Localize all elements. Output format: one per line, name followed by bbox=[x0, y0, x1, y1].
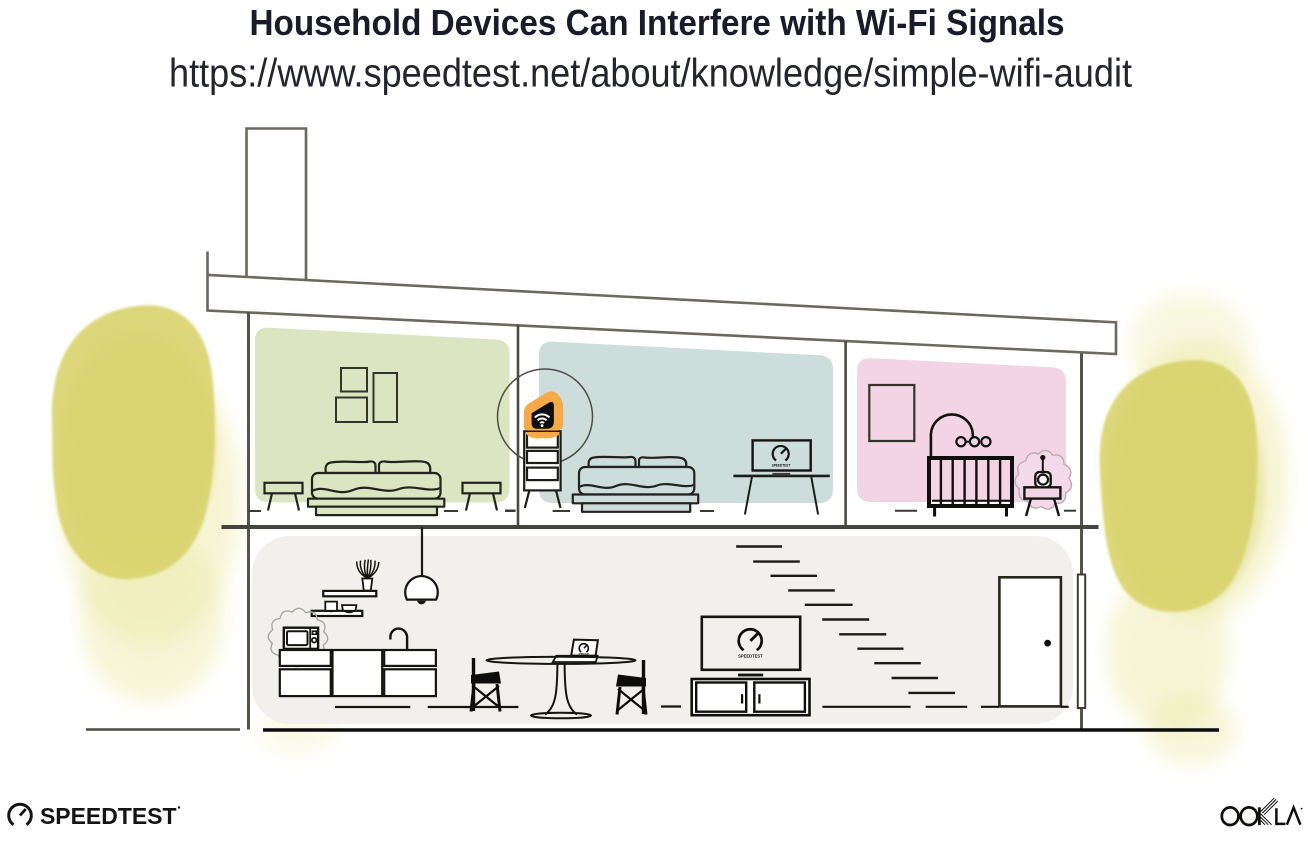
svg-text:https://www.speedtest.net/abou: https://www.speedtest.net/about/knowledg… bbox=[169, 51, 1132, 95]
svg-text:Household Devices Can Interfer: Household Devices Can Interfere with Wi-… bbox=[250, 2, 1065, 43]
svg-text:SPEEDTEST: SPEEDTEST bbox=[772, 464, 791, 468]
svg-text:SPEEDTEST: SPEEDTEST bbox=[738, 654, 763, 659]
svg-text:SPEEDTEST: SPEEDTEST bbox=[40, 803, 177, 829]
